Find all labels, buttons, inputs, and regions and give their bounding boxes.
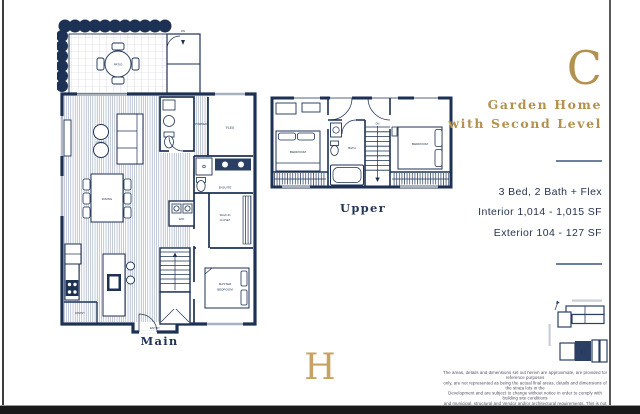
page-right-border — [609, 0, 611, 405]
info-panel: C Garden Home with Second Level 3 Bed, 2… — [440, 44, 602, 285]
entry-label: ENTRY — [150, 326, 160, 330]
spec-list: 3 Bed, 2 Bath + Flex Interior 1,014 - 1,… — [440, 182, 602, 243]
master-label-1: MASTER — [219, 282, 232, 286]
bedroom-right-label: BEDROOM — [412, 142, 428, 146]
spec-exterior: Exterior 104 - 127 SF — [440, 223, 602, 243]
plan-name-line1: Garden Home — [440, 96, 602, 115]
upper-dn-label: DN — [376, 122, 380, 126]
wd-label: W/D — [179, 217, 184, 221]
spec-beds: 3 Bed, 2 Bath + Flex — [440, 182, 602, 202]
patio-label: PATIO — [114, 62, 123, 66]
ensuite-label: ENSUITE — [219, 186, 232, 190]
keyplan-building-upper — [558, 306, 604, 327]
disclaimer-line: The areas, details and dimensions set ou… — [442, 371, 608, 381]
bedroom-left-label: BEDROOM — [290, 150, 306, 154]
disclaimer-line: Development and are subject to change wi… — [442, 391, 608, 401]
flex-label: FLEX — [226, 126, 235, 130]
main-floor-plan: PATIO DN — [57, 16, 262, 342]
brand-logo-letter: H — [296, 350, 344, 386]
patio: PATIO — [69, 34, 167, 94]
street-label-left — [549, 324, 551, 346]
walkin-rod — [243, 196, 251, 244]
brochure-page: PATIO DN — [0, 0, 640, 414]
side-gate — [167, 34, 200, 94]
pantry-label: PANTRY — [75, 312, 85, 315]
page-left-border — [2, 0, 4, 405]
walkin-label-2: CLOSET — [220, 218, 231, 222]
disclaimer-line: only, are not represented as being the a… — [442, 381, 608, 391]
bath-label: BATH — [348, 146, 356, 150]
spec-interior: Interior 1,014 - 1,015 SF — [440, 202, 602, 222]
street-label-top — [572, 300, 602, 302]
keyplan: C — [546, 296, 610, 370]
upper-plan-title: Upper — [268, 201, 458, 215]
plan-name-line2: with Second Level — [440, 115, 602, 134]
divider-top — [556, 160, 602, 162]
upper-floor-plan: DN BEDROOM BEDROOM BATH — [268, 95, 458, 193]
north-arrow-icon — [555, 301, 560, 311]
gate-dn-label: DN — [181, 29, 185, 33]
divider-bottom — [556, 263, 602, 265]
living-label: LIVING — [96, 141, 106, 145]
walkin-label-1: WALK-IN — [220, 213, 231, 217]
main-plan-title: Main — [57, 334, 262, 348]
keyplan-unit-letter: C — [581, 350, 586, 357]
powder-label: POWDER — [195, 122, 207, 126]
page-bottom-bar — [0, 405, 640, 414]
plan-letter: C — [440, 44, 602, 92]
master-label-2: BEDROOM — [217, 288, 233, 292]
plan-name: Garden Home with Second Level — [440, 96, 602, 134]
dining-label: DINING — [102, 197, 113, 201]
